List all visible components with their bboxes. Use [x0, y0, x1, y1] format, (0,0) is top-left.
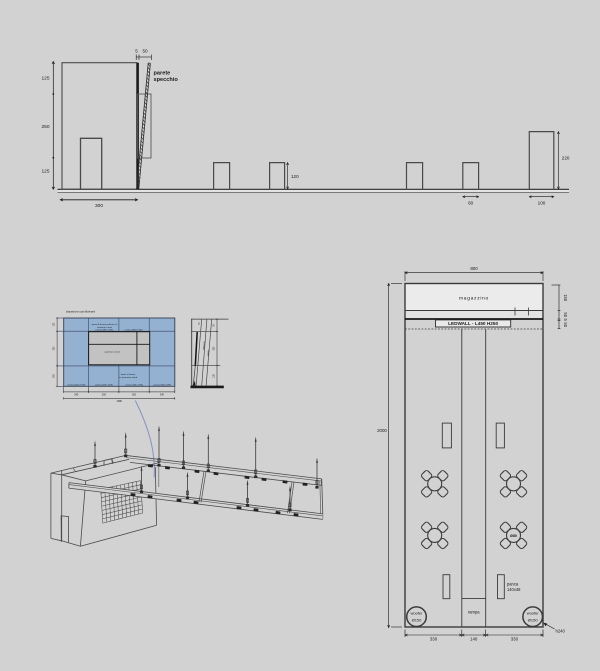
svg-text:300: 300 [95, 203, 103, 209]
svg-text:disposizione corpi illuminanti: disposizione corpi illuminanti [66, 310, 96, 313]
svg-text:140: 140 [470, 637, 478, 642]
svg-text:50: 50 [563, 312, 568, 317]
svg-text:pannelli fonoassorbenti su: pannelli fonoassorbenti su [92, 323, 118, 326]
svg-text:controsoffitto h290: controsoffitto h290 [153, 383, 172, 386]
svg-text:1080: 1080 [117, 400, 123, 403]
svg-text:330: 330 [430, 637, 438, 642]
svg-text:specchio: specchio [154, 77, 179, 83]
svg-text:240: 240 [74, 393, 79, 396]
svg-text:controsoffitto h290: controsoffitto h290 [125, 383, 144, 386]
svg-text:125: 125 [41, 76, 49, 82]
svg-text:Ø150: Ø150 [528, 617, 539, 622]
svg-text:60: 60 [468, 201, 474, 206]
svg-text:parete: parete [154, 71, 171, 77]
svg-text:copertura stand: copertura stand [104, 351, 120, 354]
svg-text:controsoffitto h290: controsoffitto h290 [95, 329, 114, 332]
svg-text:magazzino: magazzino [459, 296, 489, 302]
svg-text:LEDWALL - L450 H250: LEDWALL - L450 H250 [448, 321, 498, 326]
svg-text:220: 220 [562, 156, 570, 161]
svg-text:120: 120 [291, 174, 299, 179]
svg-text:125: 125 [41, 169, 49, 175]
svg-text:150: 150 [563, 294, 568, 302]
svg-text:Ø150: Ø150 [412, 617, 423, 622]
svg-text:50: 50 [563, 322, 568, 327]
svg-text:50: 50 [142, 49, 148, 54]
svg-text:2000: 2000 [377, 428, 387, 433]
svg-text:rampa: rampa [468, 610, 480, 615]
svg-text:panca: panca [507, 582, 519, 587]
svg-text:faretti a binario: faretti a binario [121, 373, 136, 376]
svg-text:woofer: woofer [527, 611, 540, 616]
svg-text:240: 240 [160, 393, 165, 396]
svg-text:100: 100 [538, 201, 546, 206]
svg-text:controsoffitto h290: controsoffitto h290 [95, 383, 114, 386]
svg-text:300: 300 [102, 393, 107, 396]
svg-text:5: 5 [135, 49, 138, 54]
svg-text:controsoffitto h290: controsoffitto h290 [125, 329, 144, 332]
svg-text:800: 800 [470, 266, 478, 271]
svg-text:300: 300 [132, 393, 137, 396]
svg-text:330: 330 [511, 637, 519, 642]
svg-text:Ø80: Ø80 [510, 534, 517, 538]
svg-text:woofer: woofer [410, 611, 423, 616]
svg-text:struttura a vista: struttura a vista [97, 326, 113, 329]
svg-text:140x48: 140x48 [507, 587, 521, 592]
svg-text:250: 250 [41, 124, 49, 130]
svg-text:h240: h240 [556, 629, 566, 634]
svg-text:su perimetro stand: su perimetro stand [119, 376, 138, 379]
svg-text:controsoffitto h290: controsoffitto h290 [67, 383, 86, 386]
